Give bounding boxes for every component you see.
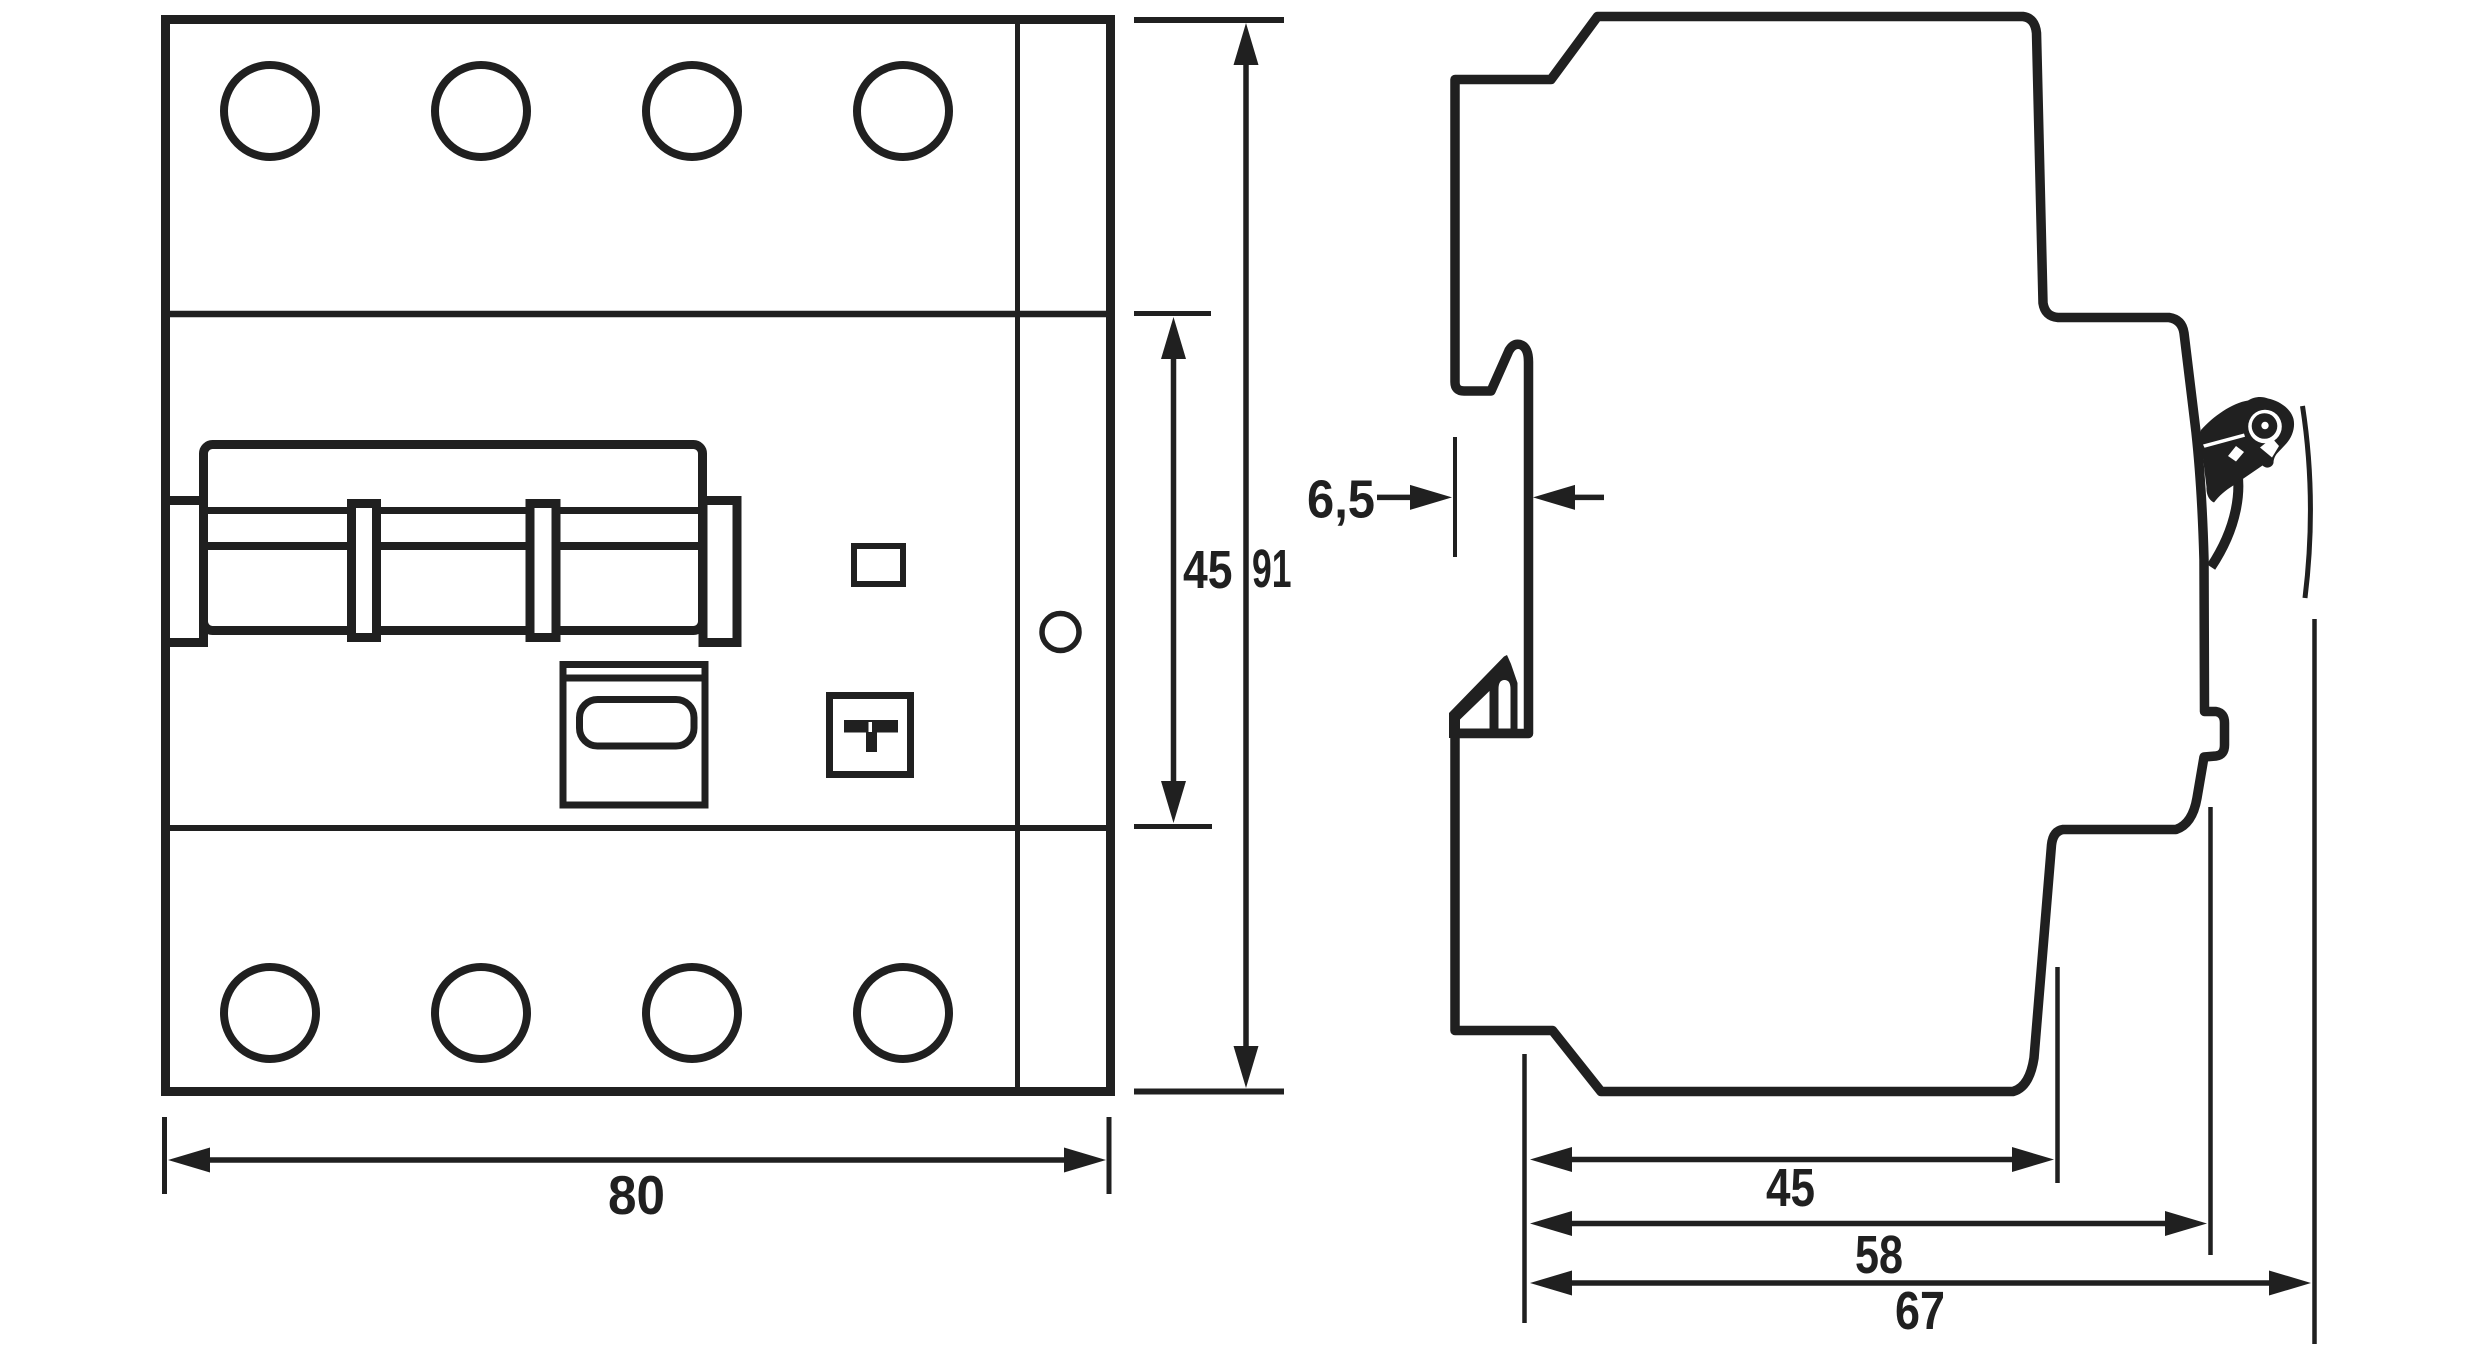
svg-text:67: 67 xyxy=(1895,1281,1945,1341)
svg-text:45: 45 xyxy=(1766,1158,1815,1218)
svg-text:6,5: 6,5 xyxy=(1307,470,1375,530)
svg-text:91: 91 xyxy=(1252,539,1292,599)
svg-text:45: 45 xyxy=(1183,540,1233,600)
svg-text:80: 80 xyxy=(608,1164,665,1226)
svg-text:58: 58 xyxy=(1855,1225,1903,1285)
